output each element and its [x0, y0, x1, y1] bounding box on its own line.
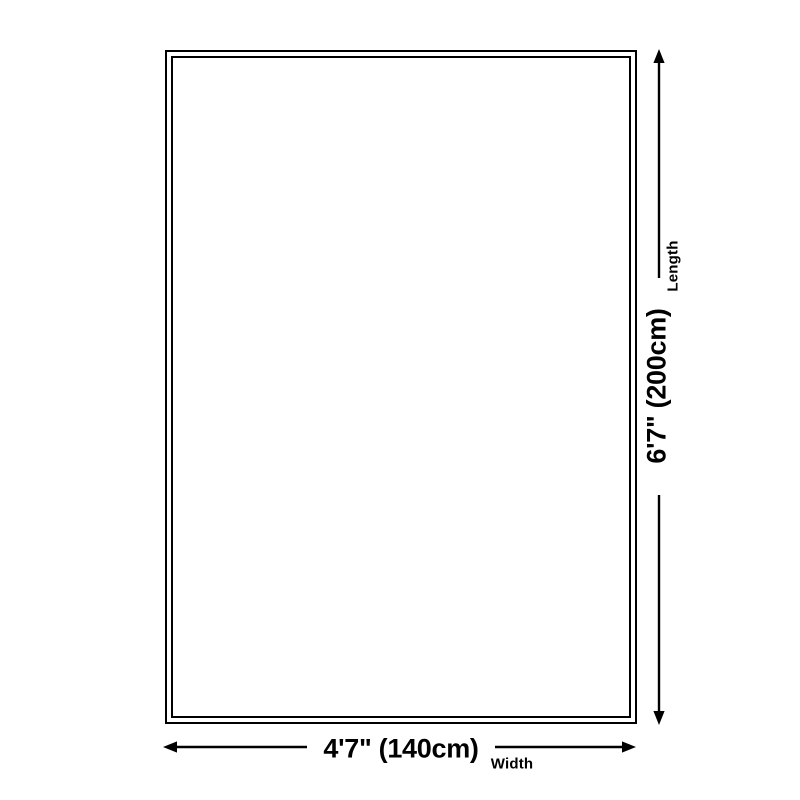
length-arrow-up-head — [653, 49, 664, 63]
length-arrow-down-head — [653, 711, 664, 725]
dimension-diagram: 6'7" (200cm) Length 4'7" (140cm) Width — [0, 0, 800, 800]
length-value-label: 6'7" (200cm) — [644, 308, 671, 463]
width-axis-label: Width — [491, 757, 534, 772]
width-value-label: 4'7" (140cm) — [323, 736, 478, 763]
dimension-arrows — [0, 0, 800, 800]
length-axis-label: Length — [666, 240, 681, 291]
width-arrow-right-head — [622, 741, 636, 752]
width-arrow-left-head — [163, 741, 177, 752]
